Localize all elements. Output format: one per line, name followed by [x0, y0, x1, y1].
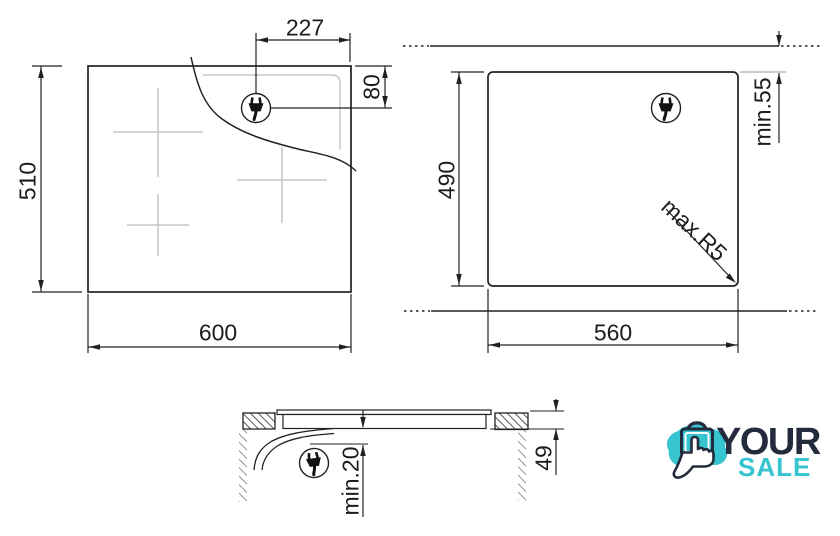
- power-plug-icon: [242, 94, 271, 123]
- dim-label-plug-x: 227: [286, 17, 324, 40]
- dim-label-total-height: 49: [533, 445, 556, 471]
- diagram-linework: [0, 0, 840, 536]
- dim-label-hob-width: 600: [199, 322, 237, 345]
- dim-label-bottom-clearance: min.20: [340, 446, 363, 515]
- hob-outline: [88, 66, 351, 292]
- cabinet-panel-left: [239, 429, 247, 502]
- dim-label-top-clearance: min.55: [752, 77, 775, 146]
- hob-glass: [277, 410, 491, 415]
- dim-label-cutout-height: 490: [436, 161, 459, 199]
- hob-body: [283, 415, 486, 429]
- worktop-section-right: [495, 413, 528, 430]
- cabinet-panel-right: [518, 429, 526, 501]
- dim-label-plug-y: 80: [361, 74, 384, 100]
- power-plug-icon: [652, 94, 681, 123]
- installation-diagram: 227 80 510 600 490 560 min.55 max.R5 min…: [0, 0, 840, 536]
- dim-label-cutout-width: 560: [594, 322, 632, 345]
- power-plug-icon: [298, 447, 331, 480]
- side-section-view: [239, 399, 564, 517]
- hob-top-view: [32, 33, 392, 353]
- logo-text-sale: SALE: [738, 454, 811, 480]
- worktop-section-left: [243, 413, 275, 429]
- dim-label-hob-height: 510: [17, 162, 40, 200]
